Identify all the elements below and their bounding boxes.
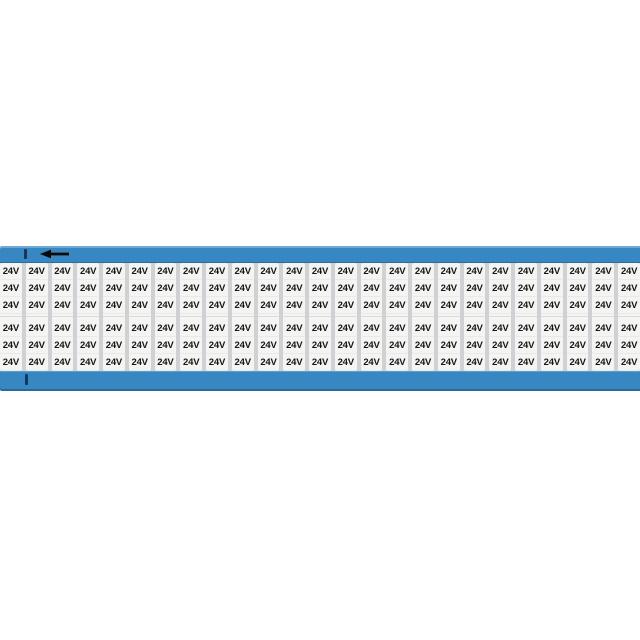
wire-marker-label: 24V — [258, 354, 280, 371]
card-bottom-band — [0, 371, 640, 391]
marker-group-gap — [129, 314, 151, 320]
wire-marker-label: 24V — [412, 280, 434, 297]
wire-marker-label: 24V — [283, 337, 305, 354]
wire-marker-label: 24V — [464, 320, 486, 337]
marker-column: 24V24V24V24V24V24V — [258, 263, 280, 371]
marker-column: 24V24V24V24V24V24V — [77, 263, 99, 371]
wire-marker-label: 24V — [52, 280, 74, 297]
marker-group-gap — [155, 314, 177, 320]
wire-marker-label: 24V — [0, 320, 22, 337]
wire-marker-label: 24V — [155, 337, 177, 354]
wire-marker-label: 24V — [26, 263, 48, 280]
wire-marker-label: 24V — [232, 263, 254, 280]
wire-marker-label: 24V — [103, 263, 125, 280]
wire-marker-label: 24V — [438, 297, 460, 314]
wire-marker-label: 24V — [361, 280, 383, 297]
wire-marker-label: 24V — [0, 354, 22, 371]
marker-group-gap — [515, 314, 537, 320]
wire-marker-label: 24V — [309, 297, 331, 314]
wire-marker-label: 24V — [438, 354, 460, 371]
wire-marker-label: 24V — [412, 337, 434, 354]
wire-marker-label: 24V — [232, 320, 254, 337]
wire-marker-label: 24V — [438, 320, 460, 337]
wire-marker-label: 24V — [180, 263, 202, 280]
wire-marker-label: 24V — [489, 337, 511, 354]
wire-marker-card: 24V24V24V24V24V24V24V24V24V24V24V24V24V2… — [0, 246, 640, 391]
wire-marker-label: 24V — [438, 263, 460, 280]
wire-marker-label: 24V — [361, 337, 383, 354]
marker-column: 24V24V24V24V24V24V — [386, 263, 408, 371]
marker-column: 24V24V24V24V24V24V — [592, 263, 614, 371]
wire-marker-label: 24V — [515, 337, 537, 354]
wire-marker-label: 24V — [618, 337, 640, 354]
wire-marker-label: 24V — [412, 320, 434, 337]
wire-marker-label: 24V — [129, 354, 151, 371]
wire-marker-label: 24V — [541, 263, 563, 280]
marker-column: 24V24V24V24V24V24V — [155, 263, 177, 371]
wire-marker-label: 24V — [129, 280, 151, 297]
wire-marker-label: 24V — [155, 280, 177, 297]
wire-marker-label: 24V — [464, 297, 486, 314]
wire-marker-label: 24V — [567, 297, 589, 314]
wire-marker-label: 24V — [232, 297, 254, 314]
marker-column: 24V24V24V24V24V24V — [412, 263, 434, 371]
wire-marker-label: 24V — [335, 280, 357, 297]
registration-tick-icon — [24, 249, 27, 259]
marker-group-gap — [52, 314, 74, 320]
wire-marker-label: 24V — [129, 297, 151, 314]
wire-marker-label: 24V — [155, 354, 177, 371]
marker-group-gap — [335, 314, 357, 320]
wire-marker-label: 24V — [258, 320, 280, 337]
wire-marker-label: 24V — [283, 297, 305, 314]
marker-column: 24V24V24V24V24V24V — [206, 263, 228, 371]
wire-marker-label: 24V — [489, 263, 511, 280]
wire-marker-label: 24V — [464, 337, 486, 354]
marker-group-gap — [26, 314, 48, 320]
wire-marker-label: 24V — [489, 354, 511, 371]
marker-group-gap — [489, 314, 511, 320]
marker-group-gap — [77, 314, 99, 320]
wire-marker-label: 24V — [541, 354, 563, 371]
wire-marker-label: 24V — [206, 263, 228, 280]
wire-marker-label: 24V — [464, 263, 486, 280]
marker-column: 24V24V24V24V24V24V — [618, 263, 640, 371]
marker-column: 24V24V24V24V24V24V — [103, 263, 125, 371]
wire-marker-label: 24V — [129, 337, 151, 354]
wire-marker-label: 24V — [155, 297, 177, 314]
marker-column: 24V24V24V24V24V24V — [0, 263, 22, 371]
wire-marker-label: 24V — [592, 280, 614, 297]
wire-marker-label: 24V — [515, 263, 537, 280]
marker-column: 24V24V24V24V24V24V — [335, 263, 357, 371]
wire-marker-label: 24V — [283, 354, 305, 371]
wire-marker-label: 24V — [618, 280, 640, 297]
marker-group-gap — [0, 314, 22, 320]
wire-marker-label: 24V — [103, 354, 125, 371]
marker-group-gap — [103, 314, 125, 320]
wire-marker-label: 24V — [386, 354, 408, 371]
wire-marker-label: 24V — [309, 320, 331, 337]
wire-marker-label: 24V — [361, 354, 383, 371]
wire-marker-label: 24V — [309, 337, 331, 354]
wire-marker-label: 24V — [515, 354, 537, 371]
registration-tick-icon — [25, 374, 28, 385]
wire-marker-label: 24V — [26, 337, 48, 354]
wire-marker-label: 24V — [26, 280, 48, 297]
marker-column: 24V24V24V24V24V24V — [283, 263, 305, 371]
wire-marker-label: 24V — [180, 320, 202, 337]
wire-marker-label: 24V — [386, 320, 408, 337]
wire-marker-label: 24V — [283, 320, 305, 337]
wire-marker-label: 24V — [515, 320, 537, 337]
wire-marker-label: 24V — [77, 337, 99, 354]
wire-marker-label: 24V — [103, 337, 125, 354]
wire-marker-label: 24V — [567, 354, 589, 371]
wire-marker-label: 24V — [309, 263, 331, 280]
wire-marker-label: 24V — [52, 354, 74, 371]
wire-marker-label: 24V — [567, 263, 589, 280]
wire-marker-label: 24V — [438, 280, 460, 297]
card-top-band — [0, 246, 640, 263]
marker-column: 24V24V24V24V24V24V — [567, 263, 589, 371]
marker-group-gap — [541, 314, 563, 320]
wire-marker-label: 24V — [592, 297, 614, 314]
wire-marker-label: 24V — [515, 280, 537, 297]
wire-marker-label: 24V — [541, 337, 563, 354]
wire-marker-label: 24V — [386, 280, 408, 297]
marker-group-gap — [412, 314, 434, 320]
wire-marker-label: 24V — [489, 280, 511, 297]
wire-marker-label: 24V — [618, 354, 640, 371]
marker-group-gap — [309, 314, 331, 320]
wire-marker-label: 24V — [361, 263, 383, 280]
wire-marker-label: 24V — [232, 354, 254, 371]
marker-group-gap — [361, 314, 383, 320]
marker-column: 24V24V24V24V24V24V — [489, 263, 511, 371]
wire-marker-label: 24V — [77, 297, 99, 314]
wire-marker-label: 24V — [515, 297, 537, 314]
wire-marker-label: 24V — [77, 320, 99, 337]
wire-marker-label: 24V — [489, 297, 511, 314]
wire-marker-label: 24V — [283, 263, 305, 280]
marker-column: 24V24V24V24V24V24V — [26, 263, 48, 371]
marker-group-gap — [180, 314, 202, 320]
wire-marker-label: 24V — [567, 337, 589, 354]
wire-marker-label: 24V — [412, 263, 434, 280]
wire-marker-label: 24V — [180, 280, 202, 297]
wire-marker-label: 24V — [541, 320, 563, 337]
marker-column: 24V24V24V24V24V24V — [541, 263, 563, 371]
wire-marker-label: 24V — [77, 354, 99, 371]
wire-marker-label: 24V — [618, 297, 640, 314]
wire-marker-label: 24V — [361, 297, 383, 314]
marker-group-gap — [283, 314, 305, 320]
marker-group-gap — [258, 314, 280, 320]
marker-column: 24V24V24V24V24V24V — [52, 263, 74, 371]
wire-marker-label: 24V — [52, 337, 74, 354]
wire-marker-label: 24V — [103, 320, 125, 337]
wire-marker-label: 24V — [206, 297, 228, 314]
marker-column: 24V24V24V24V24V24V — [515, 263, 537, 371]
marker-column: 24V24V24V24V24V24V — [438, 263, 460, 371]
wire-marker-label: 24V — [206, 337, 228, 354]
wire-marker-label: 24V — [26, 297, 48, 314]
wire-marker-label: 24V — [232, 337, 254, 354]
wire-marker-label: 24V — [258, 280, 280, 297]
marker-group-gap — [464, 314, 486, 320]
wire-marker-label: 24V — [592, 320, 614, 337]
wire-marker-label: 24V — [155, 263, 177, 280]
wire-marker-label: 24V — [232, 280, 254, 297]
wire-marker-label: 24V — [438, 337, 460, 354]
wire-marker-label: 24V — [0, 263, 22, 280]
marker-column: 24V24V24V24V24V24V — [129, 263, 151, 371]
wire-marker-label: 24V — [129, 320, 151, 337]
wire-marker-label: 24V — [335, 320, 357, 337]
wire-marker-label: 24V — [155, 320, 177, 337]
wire-marker-label: 24V — [258, 337, 280, 354]
wire-marker-label: 24V — [180, 297, 202, 314]
wire-marker-label: 24V — [52, 320, 74, 337]
wire-marker-label: 24V — [309, 354, 331, 371]
wire-marker-label: 24V — [206, 354, 228, 371]
wire-marker-label: 24V — [412, 354, 434, 371]
left-arrow-icon — [40, 249, 69, 259]
wire-marker-label: 24V — [386, 297, 408, 314]
wire-marker-label: 24V — [52, 297, 74, 314]
wire-marker-label: 24V — [592, 337, 614, 354]
marker-group-gap — [592, 314, 614, 320]
wire-marker-label: 24V — [541, 297, 563, 314]
wire-marker-label: 24V — [386, 263, 408, 280]
wire-marker-label: 24V — [258, 263, 280, 280]
wire-marker-label: 24V — [618, 320, 640, 337]
wire-marker-label: 24V — [335, 263, 357, 280]
wire-marker-label: 24V — [129, 263, 151, 280]
wire-marker-label: 24V — [567, 320, 589, 337]
wire-marker-label: 24V — [52, 263, 74, 280]
wire-marker-label: 24V — [489, 320, 511, 337]
marker-column: 24V24V24V24V24V24V — [464, 263, 486, 371]
marker-group-gap — [206, 314, 228, 320]
wire-marker-label: 24V — [361, 320, 383, 337]
wire-marker-label: 24V — [309, 280, 331, 297]
wire-marker-label: 24V — [77, 263, 99, 280]
wire-marker-label: 24V — [335, 354, 357, 371]
wire-marker-label: 24V — [258, 297, 280, 314]
wire-marker-label: 24V — [0, 280, 22, 297]
wire-marker-label: 24V — [103, 297, 125, 314]
wire-marker-label: 24V — [26, 320, 48, 337]
wire-marker-label: 24V — [592, 263, 614, 280]
wire-marker-label: 24V — [77, 280, 99, 297]
marker-column: 24V24V24V24V24V24V — [309, 263, 331, 371]
marker-group-gap — [618, 314, 640, 320]
wire-marker-label: 24V — [541, 280, 563, 297]
wire-marker-label: 24V — [206, 280, 228, 297]
wire-marker-label: 24V — [386, 337, 408, 354]
wire-marker-label: 24V — [180, 354, 202, 371]
wire-marker-label: 24V — [26, 354, 48, 371]
wire-marker-label: 24V — [464, 354, 486, 371]
wire-marker-label: 24V — [0, 337, 22, 354]
wire-marker-label: 24V — [567, 280, 589, 297]
marker-column: 24V24V24V24V24V24V — [361, 263, 383, 371]
wire-marker-label: 24V — [412, 297, 434, 314]
marker-column: 24V24V24V24V24V24V — [232, 263, 254, 371]
wire-marker-label: 24V — [335, 297, 357, 314]
wire-marker-label: 24V — [335, 337, 357, 354]
product-image: 24V24V24V24V24V24V24V24V24V24V24V24V24V2… — [0, 0, 640, 640]
marker-group-gap — [438, 314, 460, 320]
marker-group-gap — [232, 314, 254, 320]
marker-group-gap — [567, 314, 589, 320]
wire-marker-label: 24V — [206, 320, 228, 337]
wire-marker-label: 24V — [0, 297, 22, 314]
wire-marker-label: 24V — [592, 354, 614, 371]
wire-marker-label: 24V — [283, 280, 305, 297]
wire-marker-label: 24V — [464, 280, 486, 297]
marker-grid: 24V24V24V24V24V24V24V24V24V24V24V24V24V2… — [0, 263, 640, 371]
marker-group-gap — [386, 314, 408, 320]
wire-marker-label: 24V — [180, 337, 202, 354]
wire-marker-label: 24V — [103, 280, 125, 297]
marker-column: 24V24V24V24V24V24V — [180, 263, 202, 371]
wire-marker-label: 24V — [618, 263, 640, 280]
